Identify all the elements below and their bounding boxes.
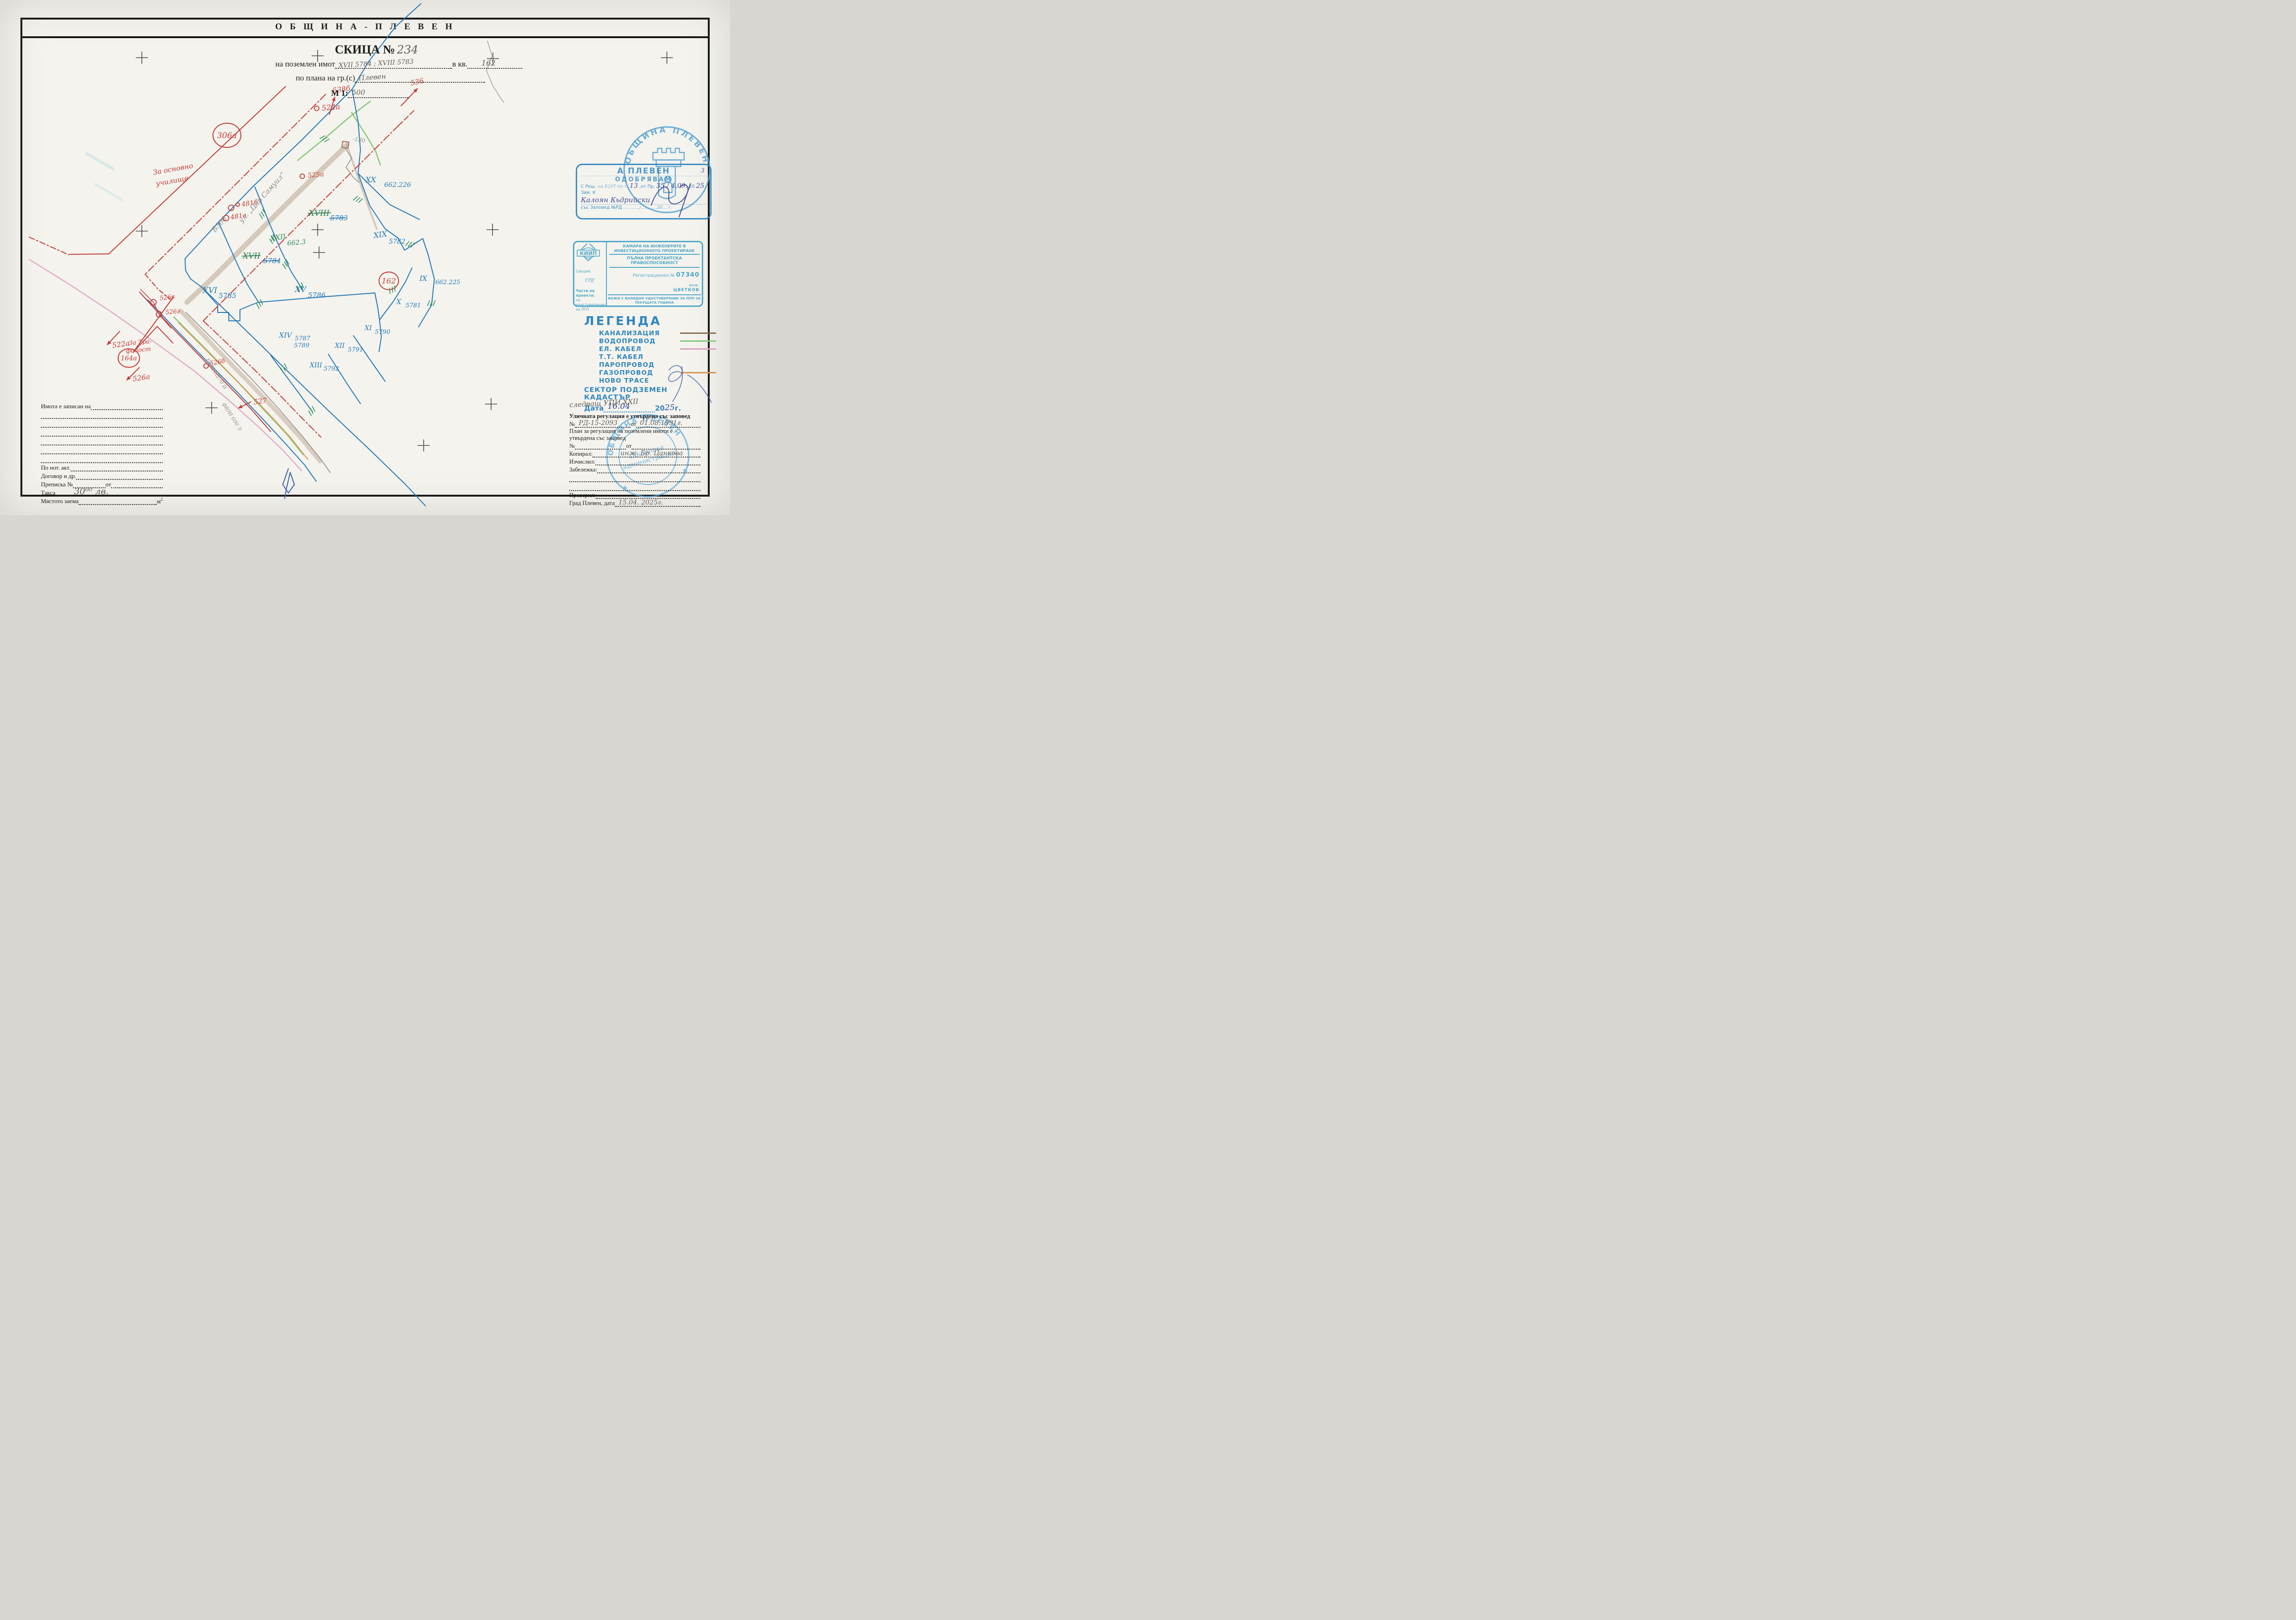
plan-dots: Плевен [355,75,485,83]
street-reg-no-row: № РД-15-2093 от 01.08.1991г. [569,421,700,428]
legend-date-suffix: г. [675,404,681,412]
svg-text:IX: IX [419,274,428,283]
svg-text:КИИП: КИИП [580,251,597,257]
copied-handwritten: инж. Бр. Цанкова [620,450,683,457]
circle-164a-label: 164а [120,355,137,362]
approve-label: ОДОБРЯВАМ [581,176,706,183]
map-label-училище: училище [155,174,189,188]
plan-prefix: по плана на гр.(с) [296,73,355,83]
parcel-value-handwritten: XVII 5784 ; XVIII 5783 [339,58,414,69]
legend-item-3: ЕЛ. КАБЕЛ [599,345,716,353]
approval-header-partial: А ПЛЕВЕН 3 [581,166,706,176]
kiip-section-value: ГПГ [576,279,605,283]
tax-row: Такса 30⁰⁰ лв. [41,490,163,497]
approval-decision-row: С Реш. на ЕСУТ по т. 13 .от Пр. 35 / 4.0… [581,183,706,190]
cyan-smudge-2 [95,184,122,200]
kiip-parts-value1: по удостоверение [576,298,605,307]
map-label--130: -130 [352,135,366,144]
decision-from: .от Пр. [639,184,655,189]
map-label-б300: Б300 [210,214,229,234]
boundary-ix [419,255,434,327]
plan-no-dots [575,442,626,450]
map-label-xx: XX [365,175,376,184]
approval-header-text: А ПЛЕВЕН [617,166,670,176]
grid-cross [206,402,218,414]
kiip-footer: ВАЖИ С ВАЛИДНО УДОСТОВЕРЕНИЕ ЗА ППП ЗА Т… [608,294,701,305]
svg-text:XXII: XXII [269,232,286,243]
legend-line-sample [680,332,716,334]
map-label-x: X [396,298,402,306]
legend-item-label: ВОДОПРОВОД [599,338,656,345]
contract-row: Договор и др. [41,473,163,480]
calculated-row: Изчислил: [569,458,700,465]
grid-cross [136,52,148,64]
order-no-handwritten: РД-15-2093 [579,419,618,427]
area-row: Мястото заема м2 [41,498,163,505]
owner-blank-line [41,447,163,454]
parcel-line-xviii-xx [352,89,360,173]
kiip-left-column: КИИП Секция: ГПГ Части на проекта: по уд… [574,242,607,305]
kiip-engineer-title: инж. [609,283,699,288]
boundary-tick-marks [307,406,316,416]
plan-no-label: № [569,443,575,450]
plan-date-dots [632,442,700,450]
map-label-5792: 5792 [324,365,339,372]
svg-text:662.3: 662.3 [287,239,306,247]
order-date-dots: 01.08.1991г. [636,420,700,428]
owner-blank-line [41,438,163,445]
map-label-527: 527 [253,396,267,406]
svg-text:5789: 5789 [294,342,309,349]
block-dots: 162 [467,61,522,69]
map-label-5787: 5787 [295,335,311,342]
stamp-ring-text: ОБЩИНА ПЛЕВЕН [623,126,711,165]
svg-text:5782: 5782 [389,238,406,246]
sketch-label: СКИЦА № [335,43,395,56]
kiip-parts-value2: за ПГП [576,307,605,312]
notary-dots [71,464,163,471]
bottom-left-form: Имота е записан на По нот. акт. Договор … [41,402,163,505]
file-label: Преписка № [41,481,73,488]
legend-line-sample [680,372,716,373]
svg-text:5792: 5792 [324,365,339,372]
owner-blank-line [41,456,163,463]
plan-value-handwritten: Плевен [359,72,386,82]
owner-dots [91,403,163,410]
map-label-525а: 525а [307,171,324,179]
svg-text:524а: 524а [321,102,341,113]
kiip-reg-row: Регистрационен № 07340 [609,272,699,279]
svg-text:X: X [396,298,402,306]
kiip-header: КАМАРА НА ИНЖЕНЕРИТЕ В ИНВЕСТИЦИОННОТО П… [609,244,699,255]
note-blank-2 [569,484,700,491]
decision-year-prefix: 20 [689,184,695,189]
from-label: от [631,421,636,428]
svg-text:XV: XV [294,285,307,294]
tax-label: Такса [41,489,55,497]
svg-text:XII: XII [334,342,345,350]
plan-reg-line1: План за регулация на поземлени имоти е [569,428,700,435]
owner-blank-line [41,421,163,428]
svg-text:Б300: Б300 [210,214,229,234]
kiip-logo: КИИП [576,244,600,265]
copied-label: Копирал: [569,451,592,458]
legend-items: КАНАЛИЗАЦИЯВОДОПРОВОДЕЛ. КАБЕЛТ.Т. КАБЕЛ… [599,329,716,385]
red-dash-left-edge [29,237,69,255]
street-line [185,89,352,259]
legend-item-4: Т.Т. КАБЕЛ [599,353,716,361]
legend-item-7: НОВО ТРАСЕ [599,377,716,385]
calculated-dots [595,458,700,465]
svg-text:5787: 5787 [295,335,311,342]
utility-orange-se [179,323,308,459]
svg-text:училище: училище [155,174,189,188]
svg-text:526а: 526а [132,372,151,383]
map-label-5784: 5784 [262,257,281,265]
circle-306a-label: 306а [217,131,237,140]
road-band-se [180,311,320,461]
kiip-stamp: КИИП Секция: ГПГ Части на проекта: по уд… [573,241,703,307]
sketch-title-row: СКИЦА № 234 [335,43,418,57]
decision-year-handwritten: 25 [696,182,705,190]
owner-blank-line [41,430,163,437]
notary-label: По нот. акт. [41,464,71,471]
grid-cross [418,439,430,451]
city-date-label: Град Плевен, дата [569,500,615,507]
svg-text:526в: 526в [159,293,175,302]
svg-text:5791: 5791 [348,346,363,353]
sketch-number-handwritten: 234 [397,43,418,56]
map-label-xv: XV [294,285,307,294]
decision-value-handwritten: 35 / 4.09. [656,182,687,190]
approval-stamp: А ПЛЕВЕН 3 ОДОБРЯВАМ С Реш. на ЕСУТ по т… [576,164,712,219]
notary-row: По нот. акт. [41,465,163,471]
copied-row: Копирал: инж. Бр. Цанкова [569,451,700,458]
parcel-prefix: на поземлен имот [275,60,335,69]
note-dots [597,466,700,473]
note-label: Забележка: [569,466,597,473]
boundary-xi-right [379,320,381,352]
scale-label: М 1: [331,88,348,98]
decision-prefix: С Реш. [581,184,596,189]
owner-blank-rows [41,412,163,463]
legend-item-label: ГАЗОПРОВОД [599,369,653,377]
map-label-xii: XII [334,342,345,350]
map-label-xiii: XIII [309,362,322,369]
kiip-section-label: Секция: [576,269,605,274]
checked-label: Проверил: [569,492,596,499]
street-line-sw [148,300,316,481]
survey-point [300,174,305,179]
pen-signature-bottom [283,469,294,498]
legend-item-label: ЕЛ. КАБЕЛ [599,345,641,353]
map-label-ix: IX [419,274,428,283]
svg-text:ОБЩИНА ПЛЕВЕН: ОБЩИНА ПЛЕВЕН [623,126,711,165]
legend-block: ЛЕГЕНДА КАНАЛИЗАЦИЯВОДОПРОВОДЕЛ. КАБЕЛТ.… [584,314,716,412]
divider-x-xi [379,268,412,320]
map-label-662.3: 662.3 [287,239,306,247]
contract-label: Договор и др. [41,472,76,480]
svg-text:XVI: XVI [202,286,217,295]
kiip-subheader: ПЪЛНА ПРОЕКТАНТСКА ПРАВОСПОСОБНОСТ [609,255,699,268]
pencil-squiggle-top [486,41,504,102]
svg-text:ф80И 600 Э: ф80И 600 Э [221,402,243,432]
decision-point-handwritten: 13 [630,182,638,190]
map-label-xi: XI [364,325,372,332]
tax-dots: 30⁰⁰ лв. [55,489,163,497]
legend-date-century: 20 [655,404,665,412]
area-unit: м2 [157,497,163,505]
plan-reg-line2: утвърдена със заповед [569,435,700,442]
approval-number-3: 3 [701,167,705,174]
map-label-5790: 5790 [375,329,390,336]
map-label-526в: 526в [159,293,175,302]
map-label-5783: 5783 [329,214,348,222]
plan-no-row: № от [569,443,700,450]
parcel-row: на поземлен имот XVII 5784 ; XVIII 5783 … [275,60,522,69]
copied-dots: инж. Бр. Цанкова [592,450,700,458]
legend-item-label: НОВО ТРАСЕ [599,377,649,385]
scanned-sketch-document: О Б Щ И Н А - П Л Е В Е Н СКИЦА № 234 на… [0,0,730,515]
svg-text:5790: 5790 [375,329,390,336]
legend-line-sample [680,348,716,350]
area-label: Мястото заема [41,498,79,505]
boundary-tick-marks [258,209,267,219]
deputy-label: Зам. К [581,190,596,195]
city-date-dots: 15.04. 2025г. [615,499,700,507]
street-reg-line: Уличната регулация е утвърдена със запов… [569,413,700,420]
legend-item-6: ГАЗОПРОВОД [599,369,716,377]
block-value-handwritten: 162 [481,59,496,67]
signed-name-handwritten: Калоян Кьдрийски [581,196,706,205]
legend-line-sample [680,340,716,342]
order-tail: ………../………..20… г. [623,205,672,210]
grid-cross [312,224,324,236]
map-label-xix: XIX [372,229,388,240]
svg-text:526г: 526г [165,308,180,316]
map-label-xvii: XVII [242,252,260,261]
tax-value-handwritten: 30⁰⁰ лв. [74,486,109,497]
parcel-dots: XVII 5784 ; XVIII 5783 [335,61,452,69]
owner-label: Имота е записан на [41,403,91,410]
svg-text:5786: 5786 [308,291,326,299]
owner-row: Имота е записан на [41,403,163,410]
scale-row: М 1: 500 [331,88,409,98]
map-label-5782: 5782 [389,238,406,246]
map-label-526г: 526г [165,308,180,316]
svg-text:525а: 525а [307,171,324,179]
boundary-tick-marks [353,195,362,204]
map-label-662.226: 662.226 [384,181,411,189]
map-label-662.225: 662.225 [435,279,460,286]
svg-text:662.225: 662.225 [435,279,460,286]
map-label-5786: 5786 [308,291,326,299]
divider-xiii-xii [328,354,360,404]
contract-dots [76,472,163,480]
survey-point [314,106,319,111]
no-label: № [569,421,575,428]
divider-xvi-xv [247,285,259,302]
svg-text:XX: XX [365,175,376,184]
kiip-right-column: КАМАРА НА ИНЖЕНЕРИТЕ В ИНВЕСТИЦИОННОТО П… [607,242,702,305]
map-label-5785: 5785 [219,292,236,300]
city-date-handwritten: 15.04. 2025г. [619,499,663,506]
map-label-526а: 526а [132,372,151,383]
scale-dots: 500 [348,91,409,98]
map-label-5781: 5781 [406,302,421,309]
checked-dots [596,491,700,499]
grid-cross [661,52,673,64]
legend-item-label: КАНАЛИЗАЦИЯ [599,330,660,337]
grid-cross [486,224,499,236]
note-row: Забележка: [569,466,700,473]
area-dots [79,498,157,505]
survey-point [236,203,240,206]
order-label: със Заповед №РД [581,205,622,210]
svg-text:XIX: XIX [372,229,388,240]
svg-text:527: 527 [253,396,267,406]
cyan-smudge-1 [87,153,113,169]
svg-text:XI: XI [364,325,372,332]
order-row: със Заповед №РД ………../………..20… г. [581,205,706,211]
svg-text:XIV: XIV [279,331,293,339]
order-date-handwritten: 01.08.1991г. [640,419,683,427]
svg-text:662.226: 662.226 [384,181,411,189]
kiip-engineer-name: ЦВЕТКОВ [609,288,699,292]
grid-cross [313,246,325,259]
decision-mid: на ЕСУТ по т. [598,184,628,189]
deputy-row: Зам. К [581,190,706,196]
svg-text:5785: 5785 [219,292,236,300]
file-dots-2 [111,481,163,488]
plan-from-label: от [626,443,632,450]
svg-text:5781: 5781 [406,302,421,309]
divider-xiv-xiii [271,355,313,412]
grid-cross [485,398,497,410]
map-label-xiv: XIV [279,331,293,339]
kiip-parts-label: Части на проекта: [576,289,605,298]
legend-title: ЛЕГЕНДА [584,314,716,328]
map-label-xviii: XVIII [308,209,331,218]
svg-text:-130: -130 [352,135,366,144]
legend-item-1: КАНАЛИЗАЦИЯ [599,329,716,337]
legend-item-2: ВОДОПРОВОД [599,337,716,345]
legend-item-5: ПАРОПРОВОД [599,361,716,369]
checked-row: Проверил: [569,492,700,499]
kiip-reg-number: 07340 [676,272,699,279]
block-prefix: в кв. [452,60,467,69]
scale-value-handwritten: 500 [352,88,365,97]
legend-item-label: Т.Т. КАБЕЛ [599,353,644,361]
order-no-dots: РД-15-2093 [575,420,631,428]
road-band-tsar-samuil [187,145,347,302]
legend-date-year-handwritten: 25 [665,403,675,412]
boundary-tick-marks [255,299,264,309]
street-corner [185,259,201,287]
map-label-5789: 5789 [294,342,309,349]
map-label-ф80и600э: ф80И 600 Э [221,402,243,432]
svg-text:XIII: XIII [309,362,322,369]
circle-162-label: 162 [382,277,396,285]
owner-blank-line [41,412,163,419]
note-blank-1 [569,475,700,482]
map-label-5791: 5791 [348,346,363,353]
plan-row: по плана на гр.(с) Плевен [296,73,485,83]
bottom-right-form: Уличната регулация е утвърдена със запов… [569,413,700,507]
kiip-reg-label: Регистрационен № [633,273,675,278]
map-label-xxii: XXII [269,232,286,243]
city-date-row: Град Плевен, дата 15.04. 2025г. [569,500,700,507]
calculated-label: Изчислил: [569,458,595,465]
regulation-dash-ext [399,109,415,126]
legend-item-label: ПАРОПРОВОД [599,361,655,369]
map-label-xvi: XVI [202,286,217,295]
map-label-524а: 524а [321,102,341,113]
street-line-se [201,287,426,506]
